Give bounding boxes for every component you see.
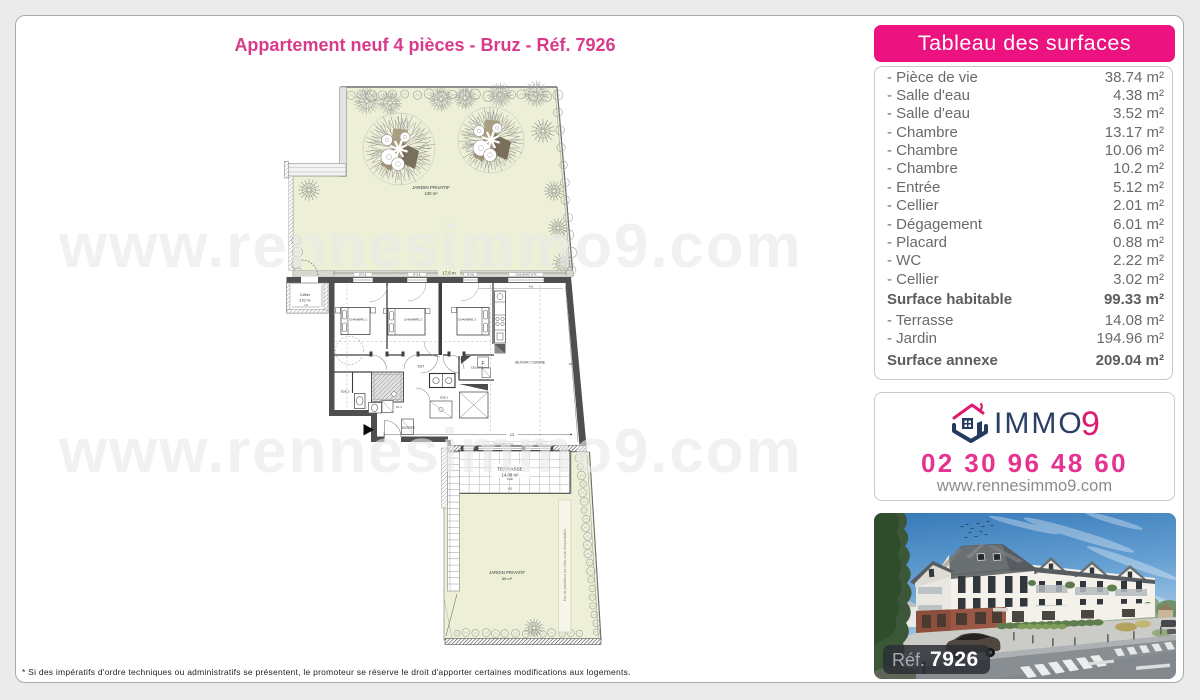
svg-text:CHAMBRE 1: CHAMBRE 1 xyxy=(349,318,367,322)
svg-text:4,0: 4,0 xyxy=(529,285,534,289)
svg-text:SEJOUR / CUISINE: SEJOUR / CUISINE xyxy=(515,361,546,365)
svg-text:4,5: 4,5 xyxy=(508,487,513,491)
svg-text:SDE 2: SDE 2 xyxy=(341,390,350,394)
svg-text:Pas de plantation sur cette zo: Pas de plantation sur cette zone d'impla… xyxy=(563,529,567,602)
svg-text:PL 1: PL 1 xyxy=(396,405,402,409)
svg-text:JARDIN PRIVATIF: JARDIN PRIVATIF xyxy=(489,570,526,575)
svg-text:3,02 m²: 3,02 m² xyxy=(299,299,311,303)
svg-text:1,9: 1,9 xyxy=(304,303,308,307)
svg-text:CHAMBRE 3: CHAMBRE 3 xyxy=(458,318,476,322)
svg-text:IMMO: IMMO xyxy=(994,407,1084,440)
svg-text:9: 9 xyxy=(1081,405,1100,443)
svg-text:65 m²: 65 m² xyxy=(502,576,513,581)
svg-text:DGT: DGT xyxy=(418,365,425,369)
svg-text:F: F xyxy=(481,361,484,367)
svg-text:CHAMBRE 2: CHAMBRE 2 xyxy=(404,318,422,322)
svg-text:JARDIN PRIVATIF: JARDIN PRIVATIF xyxy=(412,185,450,190)
svg-text:8,5: 8,5 xyxy=(569,362,574,366)
svg-text:Cellier: Cellier xyxy=(300,293,311,297)
svg-text:130 m²: 130 m² xyxy=(424,191,438,196)
svg-text:SDE 1: SDE 1 xyxy=(440,396,449,400)
